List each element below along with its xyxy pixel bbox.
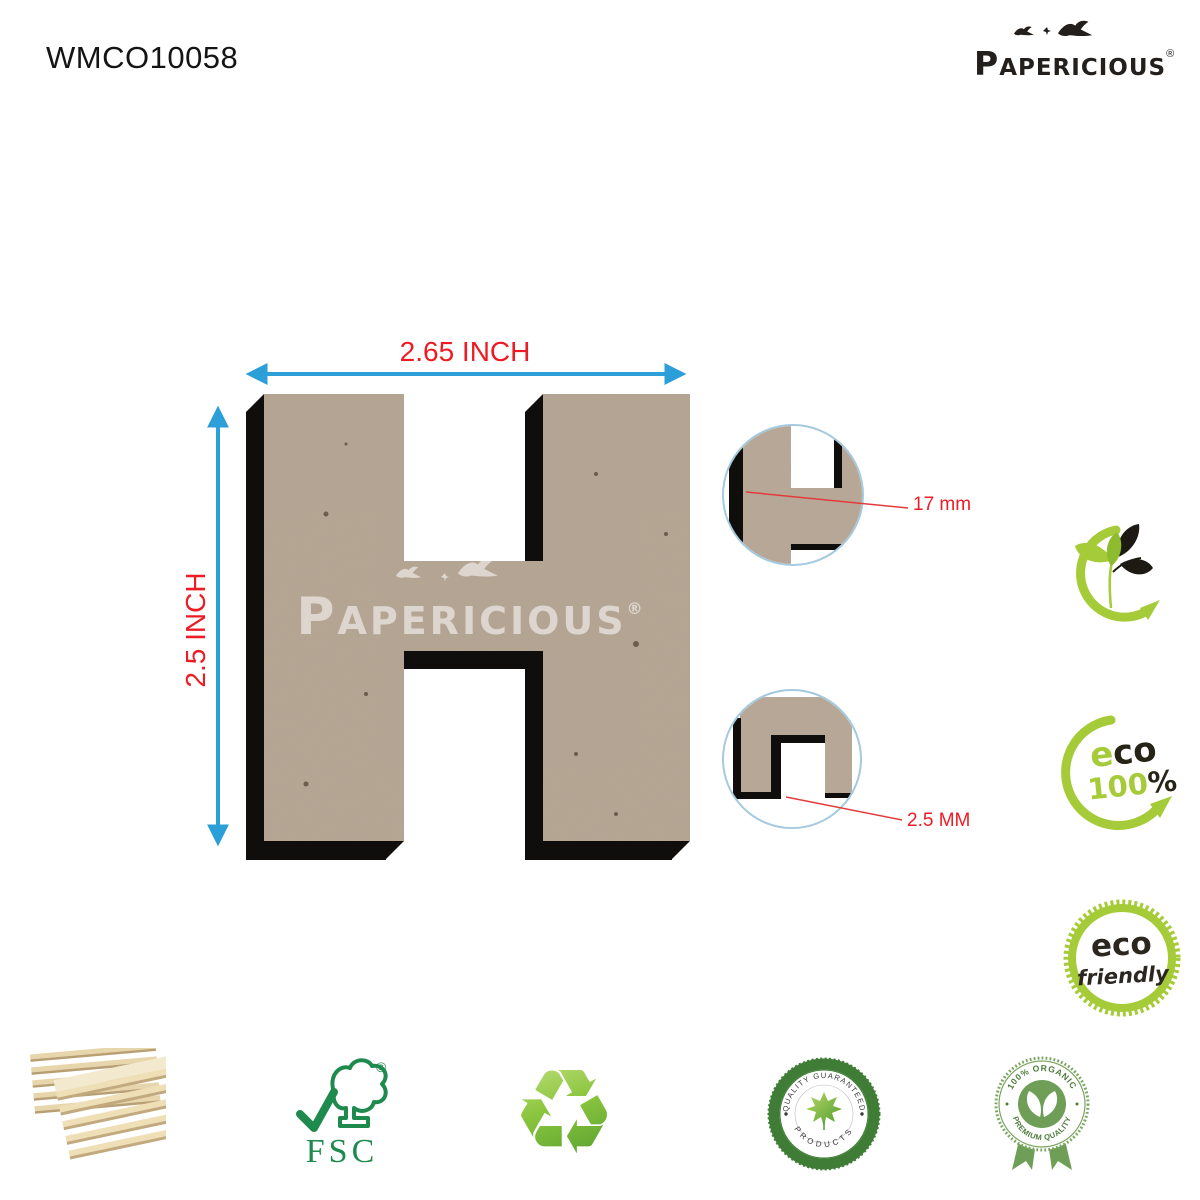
letter-face: PAPERICIOUS® — [246, 394, 696, 860]
eco-leaves-recycle-icon — [1063, 512, 1167, 644]
eco-friendly-stamp: eco friendly — [1062, 898, 1182, 1018]
organic-premium-badge: 100% ORGANIC PREMIUM QUALITY — [990, 1054, 1094, 1178]
detail-inset-thickness — [722, 424, 864, 566]
product-code: WMCO10058 — [46, 40, 238, 76]
thickness-label: 17 mm — [913, 494, 971, 516]
brand-name: PAPERICIOUS — [974, 44, 1166, 83]
detail-inset-edge — [722, 689, 862, 829]
recycle-icon: ♻ — [498, 1042, 630, 1182]
mdf-letter-artwork: PAPERICIOUS® — [246, 394, 696, 860]
eco-100-stamp: eco 100% — [1058, 698, 1198, 843]
brand-logo: PAPERICIOUS® — [974, 18, 1174, 83]
svg-text:eco: eco — [1090, 925, 1153, 964]
height-dimension-label: 2.5 INCH — [180, 520, 216, 740]
quality-guaranteed-badge: QUALITY GUARANTEED PRODUCTS — [766, 1056, 882, 1172]
mdf-board-stack-image — [26, 1048, 166, 1188]
birds-icon — [1008, 18, 1118, 44]
fsc-logo: © FSC — [292, 1056, 392, 1178]
width-dimension-label: 2.65 INCH — [340, 336, 590, 368]
registered-mark: ® — [1166, 48, 1174, 60]
edge-label: 2.5 MM — [907, 810, 970, 832]
svg-text:friendly: friendly — [1076, 962, 1170, 991]
svg-text:FSC: FSC — [306, 1133, 379, 1170]
